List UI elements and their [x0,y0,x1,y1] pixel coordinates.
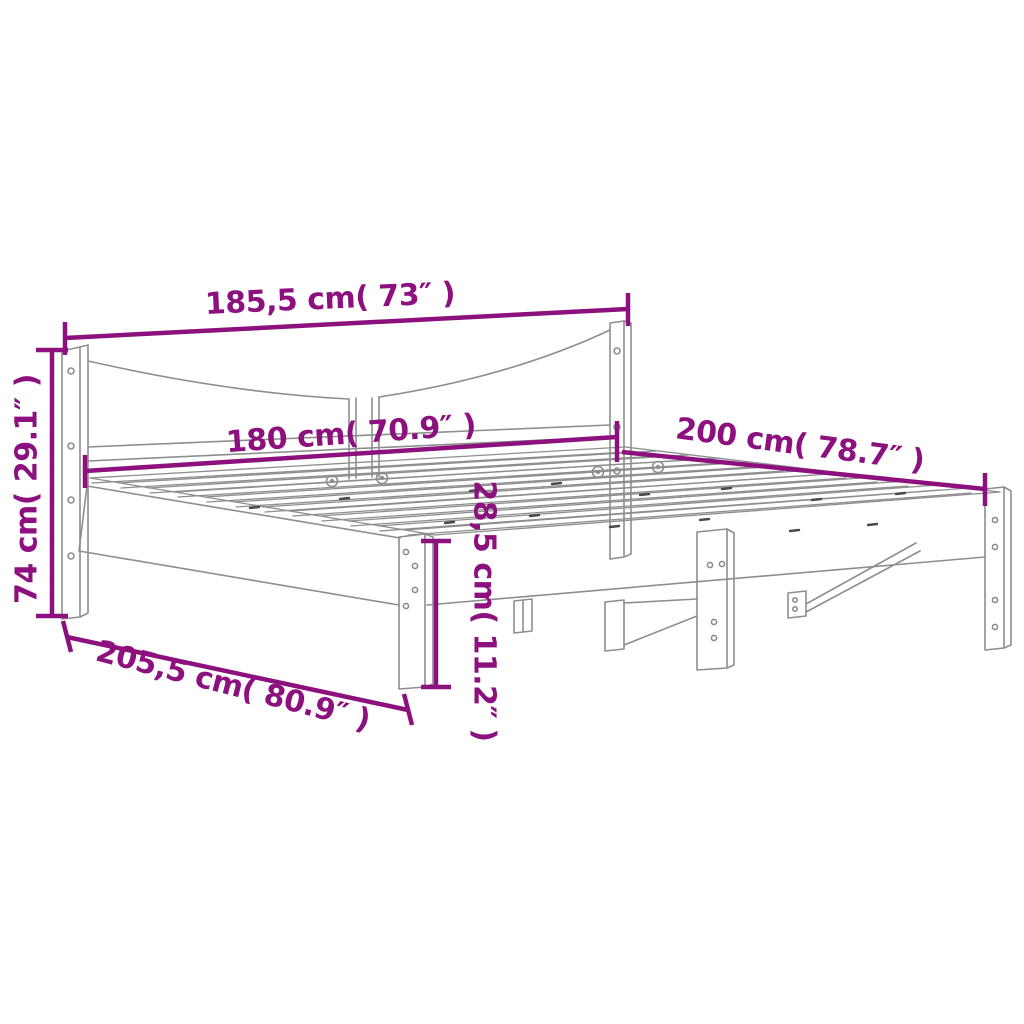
middle-leg [514,599,532,633]
bed-frame-drawing [62,321,1011,689]
bed-frame-wireframe [0,0,1024,1024]
dimension-label-frame-height: 28,5 cm( 11.2″ ) [467,480,502,741]
back-leg [788,543,920,618]
front-center-leg [697,529,734,670]
dimension-label-total-height: 74 cm( 29.1″ ) [10,374,45,604]
center-support-leg [605,599,697,651]
left-side-rail [79,486,400,605]
dimension-diagram: 185,5 cm( 73″ ) 180 cm( 70.9″ ) 200 cm( … [0,0,1024,1024]
front-left-leg [399,534,433,689]
headboard-panels [88,330,664,487]
headboard-right-post [610,321,631,559]
foot-rail [427,557,985,605]
right-end-leg [985,487,1011,650]
